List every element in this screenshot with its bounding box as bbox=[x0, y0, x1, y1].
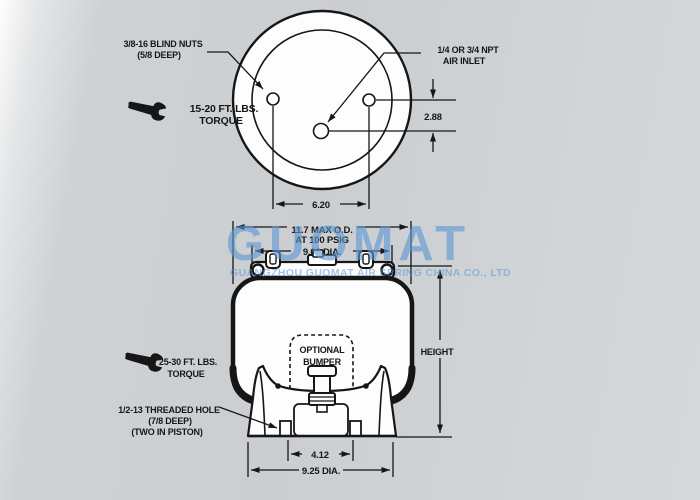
piston-stud-cap bbox=[308, 366, 336, 376]
dim-hole-offset-value: 2.88 bbox=[424, 112, 442, 123]
air-spring-technical-drawing: 2.88 6.20 3/8-16 BLIND NUTS (5/8 DEEP) 1… bbox=[0, 0, 700, 500]
threaded-hole-label-line2: (7/8 DEEP) bbox=[148, 416, 192, 426]
piston-stud-nut bbox=[309, 393, 335, 405]
blind-nut-hole-right bbox=[363, 94, 375, 106]
threaded-hole-label-line3: (TWO IN PISTON) bbox=[131, 427, 203, 437]
threaded-hole-right bbox=[350, 421, 361, 436]
wrench-icon bbox=[126, 95, 168, 122]
top-torque-label-line2: TORQUE bbox=[199, 115, 243, 127]
dim-stud-spacing-value: 4.12 bbox=[311, 450, 329, 461]
bead-clamp-right bbox=[363, 383, 369, 389]
dim-max-od-line2: AT 100 PSIG bbox=[295, 235, 349, 246]
bumper-label-line1: OPTIONAL bbox=[300, 345, 346, 355]
piston-stud-tip bbox=[317, 405, 327, 412]
top-view: 2.88 6.20 3/8-16 BLIND NUTS (5/8 DEEP) 1… bbox=[123, 11, 499, 211]
bead-plate-curl-right bbox=[382, 265, 393, 276]
blind-nuts-label-line2: (5/8 DEEP) bbox=[137, 50, 181, 60]
dim-base-value: 9.25 DIA. bbox=[302, 466, 340, 477]
air-inlet-label-line1: 1/4 OR 3/4 NPT bbox=[437, 45, 499, 55]
air-inlet-hole bbox=[314, 124, 329, 139]
threaded-hole-left bbox=[280, 421, 291, 436]
side-torque-label-line1: 25-30 FT. LBS. bbox=[159, 357, 217, 367]
top-torque-label-line1: 15-20 FT. LBS. bbox=[190, 103, 259, 115]
side-torque-label-line2: TORQUE bbox=[167, 369, 204, 379]
side-view: 11.7 MAX O.D. AT 100 PSIG 9.00 DIA. bbox=[118, 221, 454, 477]
air-fitting-port bbox=[313, 250, 323, 257]
dim-bolt-spacing-value: 6.20 bbox=[312, 200, 330, 211]
diagram-canvas: 2.88 6.20 3/8-16 BLIND NUTS (5/8 DEEP) 1… bbox=[0, 0, 700, 500]
blind-nut-hole-left bbox=[267, 93, 279, 105]
piston-stud-shaft bbox=[314, 376, 330, 394]
air-inlet-label-line2: AIR INLET bbox=[443, 56, 486, 66]
bead-clamp-left bbox=[275, 383, 281, 389]
blind-nuts-label-line1: 3/8-16 BLIND NUTS bbox=[123, 39, 202, 49]
dim-height-label: HEIGHT bbox=[421, 347, 455, 357]
threaded-hole-label-line1: 1/2-13 THREADED HOLE bbox=[118, 405, 220, 415]
bead-plate-curl-left bbox=[253, 265, 264, 276]
